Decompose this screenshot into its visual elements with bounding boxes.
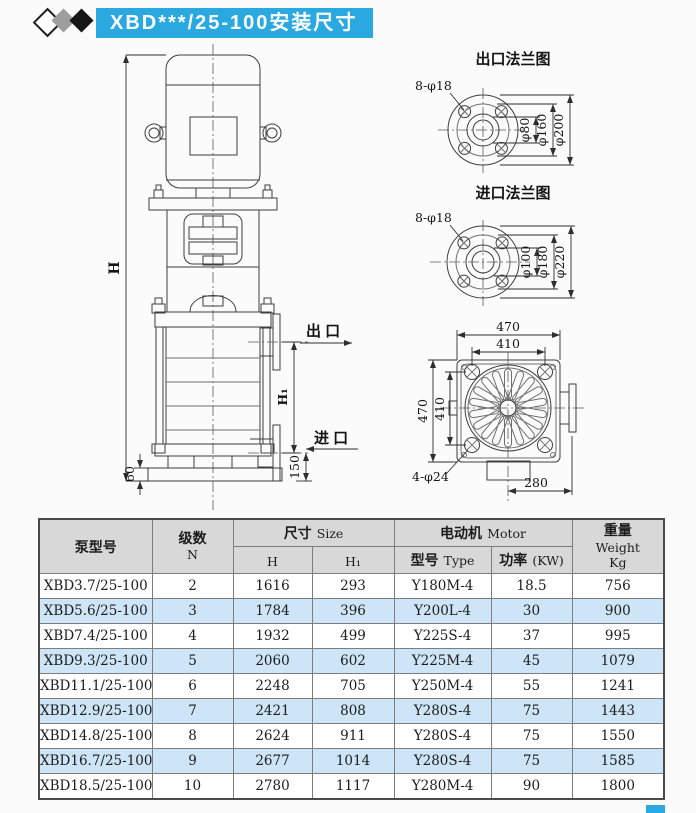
cell-type: Y280S-4	[394, 724, 491, 749]
dim-label-H1: H₁	[275, 388, 290, 405]
cell-h1: 1117	[312, 774, 394, 800]
col-header-motor-cn: 电动机	[440, 525, 482, 541]
cell-h: 2421	[233, 699, 312, 724]
cell-model: XBD14.8/25-100	[39, 724, 152, 749]
col-header-weight: 重量 Weight Kg	[572, 519, 664, 574]
cell-kw: 18.5	[491, 574, 572, 599]
table-row: XBD7.4/25-100 4 1932 499 Y225S-4 37 995	[39, 624, 664, 649]
cell-kg: 1241	[572, 674, 664, 699]
cell-h1: 808	[312, 699, 394, 724]
col-header-weight-en: Weight	[573, 540, 664, 556]
base-dim-470-left: 470	[415, 399, 430, 423]
inlet-dia-100: φ100	[518, 246, 533, 279]
base-dim-280: 280	[508, 436, 572, 495]
outlet-bolt-spec: 8-φ18	[415, 78, 452, 93]
col-header-stages-cn: 级数	[153, 530, 233, 548]
cell-kw: 75	[491, 699, 572, 724]
cell-h: 1784	[233, 599, 312, 624]
dim-label-H: H	[107, 261, 123, 274]
cell-model: XBD11.1/25-100	[39, 674, 152, 699]
base-dim-top: 470 410	[457, 319, 560, 366]
cell-kw: 30	[491, 599, 572, 624]
col-header-stages: 级数 N	[152, 519, 233, 574]
corner-banner-fragment	[646, 805, 665, 813]
cell-model: XBD7.4/25-100	[39, 624, 152, 649]
cell-h1: 293	[312, 574, 394, 599]
outlet-dia-160: φ160	[534, 114, 549, 147]
lifting-eye-right	[260, 124, 281, 142]
cell-kw: 75	[491, 749, 572, 774]
cell-model: XBD3.7/25-100	[39, 574, 152, 599]
cell-kw: 37	[491, 624, 572, 649]
cell-model: XBD18.5/25-100	[39, 774, 152, 800]
col-header-size-en: Size	[317, 526, 344, 541]
title-bar: XBD***/25-100安装尺寸	[0, 0, 696, 44]
base-bolt-spec: 4-φ24	[412, 469, 449, 484]
cell-h1: 396	[312, 599, 394, 624]
cell-type: Y250M-4	[394, 674, 491, 699]
cell-kg: 995	[572, 624, 664, 649]
outlet-flow-label: 出 口	[306, 322, 340, 340]
cell-h: 2060	[233, 649, 312, 674]
cell-h1: 602	[312, 649, 394, 674]
cell-type: Y225S-4	[394, 624, 491, 649]
cell-kw: 45	[491, 649, 572, 674]
col-header-power: 功率 (KW)	[491, 547, 572, 574]
cell-kg: 1443	[572, 699, 664, 724]
table-row: XBD11.1/25-100 6 2248 705 Y250M-4 55 124…	[39, 674, 664, 699]
cell-kg: 1079	[572, 649, 664, 674]
cell-kw: 90	[491, 774, 572, 800]
col-header-motor-en: Motor	[487, 526, 526, 541]
base-plan-drawing: 470 410 470 410 4-φ24 280	[412, 319, 586, 502]
cell-stages: 5	[152, 649, 233, 674]
col-header-size-cn: 尺寸	[284, 525, 312, 541]
lifting-eye-left	[145, 124, 166, 142]
spec-table-body: XBD3.7/25-100 2 1616 293 Y180M-4 18.5 75…	[39, 574, 664, 800]
base-dim-470-top: 470	[496, 319, 520, 334]
inlet-dia-220: φ220	[552, 246, 567, 279]
inlet-bolt-spec: 8-φ18	[415, 210, 452, 225]
cell-h: 2248	[233, 674, 312, 699]
col-header-type-cn: 型号	[411, 552, 439, 568]
pump-elevation-drawing: H H₁ 150 60	[107, 44, 358, 510]
col-header-h-label: H	[267, 554, 278, 569]
cell-stages: 9	[152, 749, 233, 774]
col-header-h1-label: H₁	[345, 554, 361, 569]
cell-kg: 900	[572, 599, 664, 624]
spec-table-header: 泵型号 级数 N 尺寸 Size 电动机 Motor 重量 Wei	[39, 519, 664, 574]
col-header-power-unit: (KW)	[532, 553, 564, 568]
cell-kg: 1585	[572, 749, 664, 774]
outlet-flange-title: 出口法兰图	[475, 50, 550, 68]
base-dim-410-top: 410	[496, 336, 520, 351]
base-dim-410-left: 410	[432, 397, 447, 421]
inlet-dia-180: φ180	[535, 246, 550, 279]
cell-stages: 6	[152, 674, 233, 699]
cell-model: XBD16.7/25-100	[39, 749, 152, 774]
technical-drawing: H H₁ 150 60	[0, 40, 696, 523]
cell-stages: 10	[152, 774, 233, 800]
cell-h1: 1014	[312, 749, 394, 774]
cell-stages: 3	[152, 599, 233, 624]
cell-model: XBD12.9/25-100	[39, 699, 152, 724]
cell-h: 2624	[233, 724, 312, 749]
col-header-size: 尺寸 Size	[233, 519, 394, 547]
col-header-motor: 电动机 Motor	[394, 519, 572, 547]
cell-h: 1616	[233, 574, 312, 599]
inlet-flange-title: 进口法兰图	[475, 184, 550, 202]
table-row: XBD3.7/25-100 2 1616 293 Y180M-4 18.5 75…	[39, 574, 664, 599]
page-title: XBD***/25-100安装尺寸	[96, 8, 373, 38]
cell-stages: 8	[152, 724, 233, 749]
table-row: XBD16.7/25-100 9 2677 1014 Y280S-4 75 15…	[39, 749, 664, 774]
cell-kg: 1800	[572, 774, 664, 800]
catalog-page: XBD***/25-100安装尺寸	[0, 0, 696, 813]
base-dim-left: 470 410	[415, 360, 466, 462]
table-row: XBD9.3/25-100 5 2060 602 Y225M-4 45 1079	[39, 649, 664, 674]
col-header-stages-en: N	[153, 547, 233, 563]
base-dim-280-label: 280	[524, 475, 548, 490]
cell-type: Y280M-4	[394, 774, 491, 800]
inlet-flange-diagram: 进口法兰图 8-φ18 φ100 φ180 φ220	[415, 184, 575, 306]
col-header-model: 泵型号	[39, 519, 152, 574]
cell-h1: 499	[312, 624, 394, 649]
col-header-h: H	[233, 547, 312, 574]
col-header-h1: H₁	[312, 547, 394, 574]
cell-h: 2677	[233, 749, 312, 774]
cell-type: Y280S-4	[394, 749, 491, 774]
cell-stages: 4	[152, 624, 233, 649]
col-header-model-label: 泵型号	[75, 539, 117, 555]
motor-nameplate	[190, 117, 237, 155]
dim-label-60: 60	[122, 466, 137, 482]
cell-type: Y180M-4	[394, 574, 491, 599]
table-row: XBD14.8/25-100 8 2624 911 Y280S-4 75 155…	[39, 724, 664, 749]
col-header-type: 型号 Type	[394, 547, 491, 574]
table-row: XBD5.6/25-100 3 1784 396 Y200L-4 30 900	[39, 599, 664, 624]
table-row: XBD12.9/25-100 7 2421 808 Y280S-4 75 144…	[39, 699, 664, 724]
table-row: XBD18.5/25-100 10 2780 1117 Y280M-4 90 1…	[39, 774, 664, 800]
col-header-weight-cn: 重量	[573, 522, 664, 540]
outlet-dia-80: φ80	[517, 118, 532, 143]
col-header-weight-unit: Kg	[573, 555, 664, 571]
cell-h: 1932	[233, 624, 312, 649]
cell-stages: 2	[152, 574, 233, 599]
pump-base	[148, 468, 282, 481]
cell-kg: 756	[572, 574, 664, 599]
cell-h1: 911	[312, 724, 394, 749]
outlet-flange-diagram: 出口法兰图 8-φ18 φ80 φ160 φ200	[415, 50, 574, 173]
spec-table: 泵型号 级数 N 尺寸 Size 电动机 Motor 重量 Wei	[38, 518, 665, 800]
cell-model: XBD5.6/25-100	[39, 599, 152, 624]
inlet-flow-label: 进 口	[314, 430, 348, 447]
dim-label-150: 150	[287, 455, 302, 479]
cell-h: 2780	[233, 774, 312, 800]
col-header-power-cn: 功率	[499, 552, 527, 568]
dim-H: H	[107, 55, 166, 481]
col-header-weight-line1: 重量 Weight	[573, 522, 664, 555]
cell-model: XBD9.3/25-100	[39, 649, 152, 674]
cell-type: Y280S-4	[394, 699, 491, 724]
outlet-dia-200: φ200	[551, 114, 566, 147]
cell-stages: 7	[152, 699, 233, 724]
dim-150: 150	[287, 453, 312, 481]
cell-h1: 705	[312, 674, 394, 699]
cell-kw: 75	[491, 724, 572, 749]
dim-H1: H₁	[275, 342, 300, 453]
cell-type: Y200L-4	[394, 599, 491, 624]
col-header-type-en: Type	[444, 553, 475, 568]
cell-type: Y225M-4	[394, 649, 491, 674]
cell-kw: 55	[491, 674, 572, 699]
diamond-logo-black	[69, 8, 93, 32]
cell-kg: 1550	[572, 724, 664, 749]
